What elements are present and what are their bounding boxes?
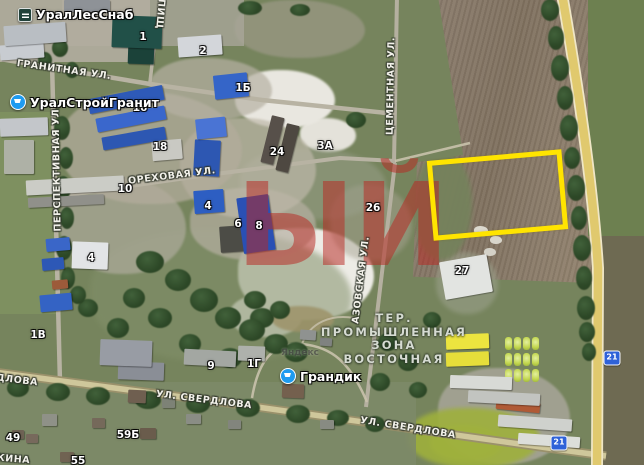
storage-tank (514, 353, 521, 366)
building (42, 257, 65, 271)
building (193, 189, 225, 214)
tree-canopy (238, 1, 262, 15)
building (446, 351, 489, 366)
building (228, 420, 241, 429)
building (45, 237, 70, 252)
building (320, 420, 334, 429)
uralstroygranit-icon[interactable] (10, 94, 26, 110)
tree-canopy (573, 235, 591, 261)
tree-canopy (582, 343, 596, 361)
building (282, 384, 304, 399)
building (195, 116, 227, 139)
tree-canopy (236, 399, 260, 417)
tree-canopy (7, 379, 29, 397)
route-badge: 21 (551, 436, 568, 451)
tree-canopy (577, 296, 595, 320)
tree-canopy (398, 353, 418, 371)
tree-canopy (571, 206, 587, 230)
building (446, 333, 489, 349)
satellite-map[interactable]: ЫЙ Яндекс ТЕР.ПРОМЫШЛЕННАЯЗОНАВОСТОЧНАЯ … (0, 0, 644, 465)
storage-tank (514, 337, 521, 350)
building (0, 117, 48, 137)
storage-tank (523, 353, 530, 366)
poi-urallessnab[interactable]: УралЛесСнаб (18, 7, 133, 22)
tree-canopy (70, 286, 86, 304)
building (151, 139, 183, 162)
tree-canopy (423, 312, 441, 328)
tree-canopy (136, 251, 164, 273)
grandik-label: Грандик (300, 369, 361, 384)
building (238, 346, 266, 362)
building (92, 418, 105, 428)
tree-canopy (541, 0, 559, 21)
building (128, 390, 147, 404)
grandik-icon[interactable] (280, 368, 296, 384)
tree-canopy (239, 319, 265, 341)
building (177, 34, 222, 57)
tree-canopy (346, 112, 366, 128)
storage-tank (523, 369, 530, 382)
tree-canopy (409, 382, 427, 398)
building (186, 414, 201, 424)
storage-tank (523, 337, 530, 350)
tree-canopy (86, 387, 110, 405)
tree-canopy (548, 26, 564, 50)
building (60, 452, 74, 462)
urallessnab-icon[interactable] (18, 8, 32, 22)
tree-canopy (378, 333, 398, 351)
building (320, 338, 333, 347)
shopping-cart-icon (14, 99, 21, 103)
tree-canopy (286, 405, 310, 423)
tree-canopy (551, 55, 569, 81)
tree-canopy (186, 395, 210, 413)
building (193, 139, 221, 176)
tree-canopy (264, 334, 288, 354)
tree-canopy (290, 4, 310, 16)
building (39, 293, 72, 313)
tree-canopy (190, 288, 218, 312)
building (72, 241, 109, 269)
tree-canopy (165, 269, 191, 291)
building (450, 375, 512, 390)
tree-canopy (59, 147, 73, 169)
building (4, 140, 34, 174)
storage-tank (532, 369, 539, 382)
tree-canopy (564, 147, 580, 169)
tree-canopy (60, 207, 74, 229)
building (140, 428, 156, 439)
tree-canopy (270, 301, 290, 319)
shopping-cart-icon (284, 373, 291, 377)
tree-canopy (567, 175, 585, 201)
storage-tank (532, 353, 539, 366)
route-badge: 21 (604, 351, 621, 366)
urallessnab-label: УралЛесСнаб (36, 7, 133, 22)
tree-canopy (576, 266, 592, 290)
building (52, 279, 69, 289)
tree-canopy (560, 115, 578, 141)
building (26, 434, 38, 443)
storage-tank (514, 369, 521, 382)
tree-canopy (107, 318, 129, 338)
tree-canopy (244, 291, 266, 309)
tree-canopy (65, 62, 79, 78)
storage-tank (532, 337, 539, 350)
building (213, 72, 249, 99)
tree-canopy (46, 383, 70, 401)
building (300, 329, 317, 340)
storage-tank (505, 337, 512, 350)
tree-canopy (123, 288, 145, 308)
tree-canopy (215, 307, 241, 329)
uralstroygranit-label: УралСтройГранит (30, 95, 159, 110)
tree-canopy (557, 86, 573, 110)
poi-grandik[interactable]: Грандик (280, 368, 361, 384)
building (184, 349, 237, 368)
tree-canopy (148, 308, 172, 328)
tree-canopy (370, 373, 390, 391)
poi-uralstroygranit[interactable]: УралСтройГранит (10, 94, 159, 110)
building (100, 339, 153, 367)
building (162, 398, 175, 408)
tree-canopy (365, 416, 385, 432)
building (12, 430, 24, 439)
storage-tank (505, 353, 512, 366)
building (42, 414, 57, 426)
tree-canopy (579, 322, 595, 342)
tree-canopy (54, 116, 70, 140)
